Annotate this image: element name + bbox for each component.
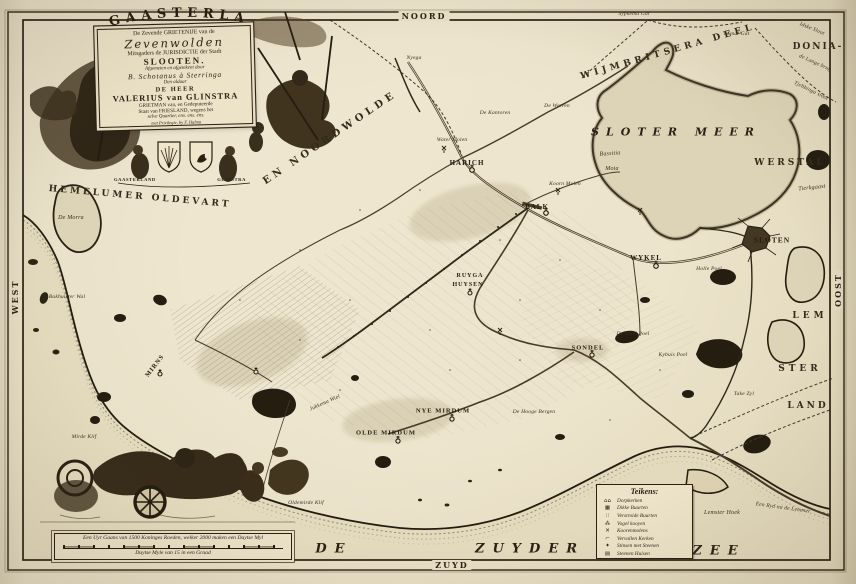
lake-sloter-meer: SLOTER MEER	[591, 126, 761, 139]
label-sypkema-gat: Sypkema Gat	[618, 11, 649, 17]
legend-item: ✕ Koorenmolens	[601, 527, 688, 535]
legend-symbol-icon: ⌂⌂	[601, 498, 614, 504]
label-koorn-molen: Koorn Molen	[549, 181, 581, 187]
legend-symbol-icon: ∷	[601, 513, 614, 519]
scale-cartouche: Een Uyr Gaans van 1500 Koninges Roeden, …	[54, 533, 292, 560]
label-bakhuister-wal: Bakhuister Wal	[49, 294, 85, 300]
town-huysen: HUYSEN	[452, 282, 483, 288]
legend-item-label: Koorenmolens	[617, 528, 648, 534]
label-lemster-hoek: Lemster Hoek	[704, 510, 740, 516]
label-tjebbinga-sloot: Tjebbinga sloot	[793, 80, 829, 102]
label-bassitia: Bassitia	[599, 150, 620, 157]
arms-ribbon: GAASTERLAND GLINSTRA	[114, 177, 246, 182]
legend-item-label: Stinsen met Steenen	[617, 543, 659, 549]
scale-ruler	[63, 543, 283, 549]
legend-symbol-icon: ✕	[601, 528, 614, 534]
town-harich: HARICH	[450, 159, 485, 167]
label-de-morra: De Morra	[58, 215, 84, 221]
region-donia: DONIA-	[793, 42, 844, 52]
town-mirns: MIRNS	[144, 353, 166, 378]
legend-item-label: Vervallen Kerken	[617, 536, 654, 542]
legend-item-label: Dorpkerken	[617, 498, 642, 504]
region-lem: LEM	[792, 311, 827, 321]
label-nyega: Nyega	[406, 55, 421, 61]
ribbon-right-text: GLINSTRA	[217, 177, 246, 182]
region-noordwolde: EN NOORDWOLDE	[261, 89, 399, 187]
label-oldemirde-klif: Oldemirde Klif	[288, 500, 324, 506]
label-water-molen: Water Molen	[437, 137, 468, 143]
town-sloten: SLOTEN	[754, 236, 790, 245]
label-ryd-na-lemmer: Een Ryd na de Lemmer	[755, 501, 811, 515]
legend-item-label: Dikke Buurten	[617, 505, 648, 511]
compass-west: WEST	[10, 277, 20, 318]
legend-item: ✦ Stinsen met Steenen	[601, 543, 688, 551]
label-kybuis-poel: Kybuis Poel	[659, 352, 688, 358]
scale-text-2: Duytse Myle van 15 in een Graad	[55, 550, 291, 557]
legend-symbol-icon: ⌐	[601, 536, 614, 542]
sea-zee: ZEE	[692, 544, 745, 559]
legend-symbol-icon: ⁂	[601, 521, 614, 527]
region-ster: STER	[778, 364, 822, 374]
legend-item: ▤ Steenen Huisen	[601, 550, 688, 558]
legend-items: ⌂⌂ Dorpkerken ▦ Dikke Buurten ∷ Verstroi…	[601, 497, 688, 558]
legend-item: ⌐ Vervallen Kerken	[601, 535, 688, 543]
town-olde-mirdum: OLDE MIRDUM	[356, 430, 416, 437]
sea-de: DE	[315, 542, 352, 557]
legend-item-label: Steenen Huisen	[617, 551, 650, 557]
label-zand-poel: De Zand Poel	[617, 331, 650, 337]
label-smal-gat: 't Smal Gat	[723, 31, 750, 37]
legend-box: Teikens: ⌂⌂ Dorpkerken ▦ Dikke Buurten ∷…	[596, 484, 693, 559]
town-wykel: WYKEL	[630, 254, 662, 262]
compass-south: ZUYD	[432, 560, 471, 570]
legend-item: ⁂ Vogel kooyen	[601, 520, 688, 528]
region-werstal: WERSTAL	[754, 158, 825, 168]
compass-east: OOST	[833, 270, 843, 310]
label-moia: Moia	[605, 166, 618, 172]
region-hemelumer-oldevart: HEMELUMER OLDEVART	[48, 184, 232, 210]
label-jukkema-wiel: Jukkema Wiel	[309, 394, 341, 413]
label-mirde-klif: Mirde Klif	[72, 434, 97, 440]
label-idske-sloot: Idske Sloot	[799, 21, 826, 36]
label-tierkgaast: Tierkgaast	[798, 184, 826, 193]
label-holle-poel: Holle Poel	[696, 266, 722, 272]
label-hooge-bergen: De Hooge Bergen	[513, 409, 556, 415]
label-de-warren: De Warren	[544, 103, 570, 109]
town-ruyga: RUYGA	[457, 273, 484, 279]
compass-north: NOORD	[399, 11, 450, 21]
legend-symbol-icon: ▦	[601, 505, 614, 511]
legend-symbol-icon: ✦	[601, 543, 614, 549]
region-land: LAND	[787, 401, 828, 411]
legend-item: ∷ Verstroide Buurten	[601, 512, 688, 520]
scale-text-1: Een Uyr Gaans van 1500 Koninges Roeden, …	[55, 535, 291, 542]
ribbon-left-text: GAASTERLAND	[114, 177, 156, 182]
label-take-zyl: Take Zyl	[734, 391, 754, 397]
town-sondel: SONDEL	[572, 345, 605, 352]
town-balk: BALK	[525, 203, 549, 211]
town-nye-mirdum: NYE MIRDUM	[416, 408, 470, 415]
map-sheet: GAASTERLAND HEMELUMER OLDEVART EN NOORDW…	[0, 0, 856, 584]
legend-item-label: Verstroide Buurten	[617, 513, 657, 519]
label-lange-brug: de Lange brug	[798, 53, 832, 73]
title-cartouche-panel: De Zevende GRIETENIJE van de Zevenwolden…	[97, 25, 254, 128]
legend-item: ▦ Dikke Buurten	[601, 505, 688, 513]
sea-zuyder: ZUYDER	[475, 542, 585, 557]
legend-title: Teikens:	[601, 487, 688, 496]
legend-item-label: Vogel kooyen	[617, 521, 645, 527]
legend-item: ⌂⌂ Dorpkerken	[601, 497, 688, 505]
label-de-kantoren: De Kantoren	[480, 110, 511, 116]
legend-symbol-icon: ▤	[601, 551, 614, 557]
